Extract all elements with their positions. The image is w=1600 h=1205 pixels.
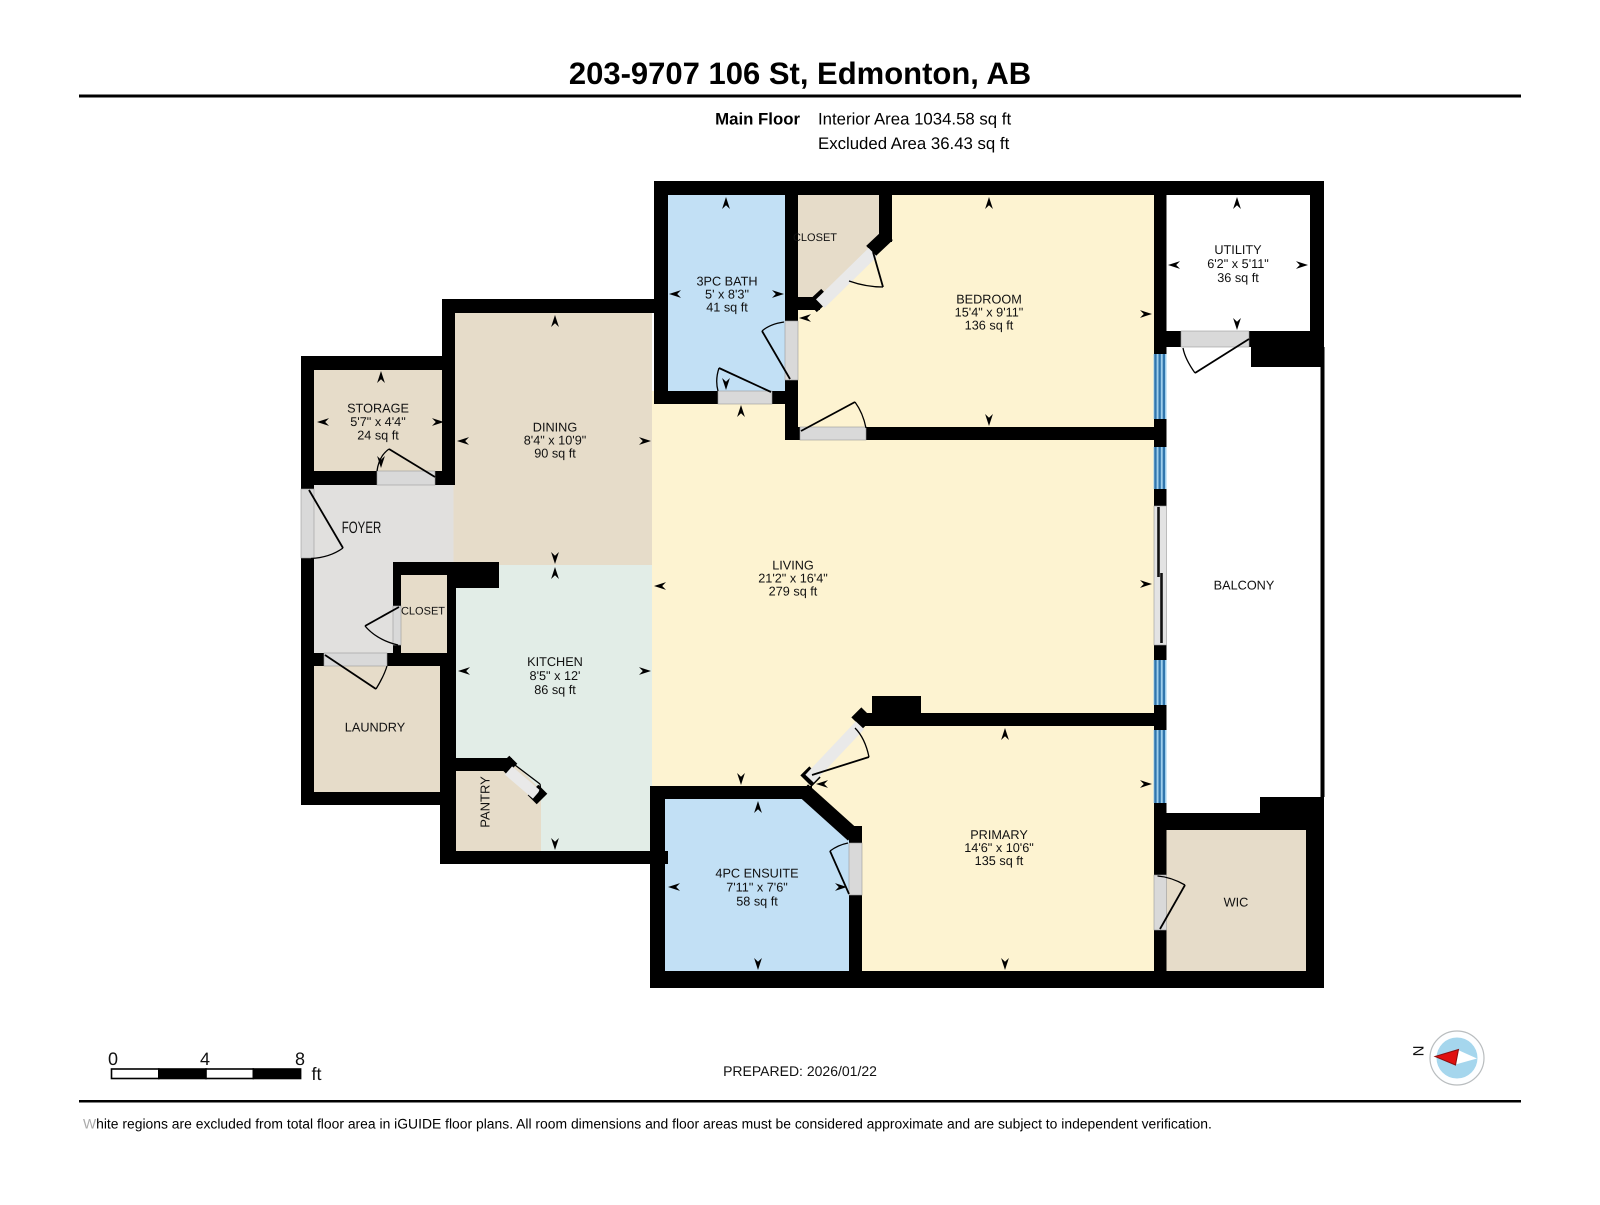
svg-text:203-9707 106 St, Edmonton, AB: 203-9707 106 St, Edmonton, AB	[569, 56, 1031, 91]
svg-text:ft: ft	[312, 1064, 322, 1084]
svg-text:15'4" x 9'11": 15'4" x 9'11"	[955, 306, 1024, 320]
svg-text:14'6" x 10'6": 14'6" x 10'6"	[964, 841, 1034, 855]
svg-text:21'2" x 16'4": 21'2" x 16'4"	[758, 572, 828, 586]
svg-text:8'4" x 10'9": 8'4" x 10'9"	[524, 434, 587, 448]
svg-text:3PC BATH: 3PC BATH	[696, 275, 757, 289]
svg-text:BALCONY: BALCONY	[1214, 579, 1275, 593]
svg-text:CLOSET: CLOSET	[401, 606, 445, 618]
svg-text:Main Floor: Main Floor	[715, 110, 800, 129]
svg-text:135 sq ft: 135 sq ft	[975, 854, 1024, 868]
svg-text:58 sq ft: 58 sq ft	[736, 895, 778, 909]
svg-text:36 sq ft: 36 sq ft	[1217, 271, 1259, 285]
svg-text:4: 4	[200, 1049, 210, 1069]
svg-text:8'5" x 12': 8'5" x 12'	[530, 669, 581, 683]
svg-text:WIC: WIC	[1224, 896, 1249, 910]
svg-text:BEDROOM: BEDROOM	[956, 293, 1022, 307]
svg-text:8: 8	[295, 1049, 305, 1069]
svg-text:41 sq ft: 41 sq ft	[706, 301, 748, 315]
svg-text:KITCHEN: KITCHEN	[527, 655, 583, 669]
svg-text:DINING: DINING	[533, 421, 577, 435]
svg-text:90 sq ft: 90 sq ft	[534, 447, 576, 461]
svg-text:FOYER: FOYER	[342, 519, 382, 537]
svg-text:PREPARED: 2026/01/22: PREPARED: 2026/01/22	[723, 1063, 877, 1079]
svg-text:279 sq ft: 279 sq ft	[769, 585, 818, 599]
svg-text:7'11" x 7'6": 7'11" x 7'6"	[726, 881, 788, 895]
svg-text:6'2" x 5'11": 6'2" x 5'11"	[1207, 257, 1269, 271]
svg-text:4PC ENSUITE: 4PC ENSUITE	[715, 867, 798, 881]
svg-text:Interior Area 1034.58 sq ft: Interior Area 1034.58 sq ft	[818, 110, 1011, 129]
svg-text:5' x 8'3": 5' x 8'3"	[705, 288, 749, 302]
svg-text:PANTRY: PANTRY	[478, 776, 493, 828]
svg-text:UTILITY: UTILITY	[1214, 243, 1262, 257]
svg-text:LAUNDRY: LAUNDRY	[345, 721, 406, 735]
svg-text:PRIMARY: PRIMARY	[970, 828, 1028, 842]
svg-text:0: 0	[108, 1049, 118, 1069]
svg-text:Excluded Area 36.43 sq ft: Excluded Area 36.43 sq ft	[818, 134, 1010, 153]
svg-text:86 sq ft: 86 sq ft	[534, 683, 576, 697]
svg-text:STORAGE: STORAGE	[347, 402, 409, 416]
svg-text:24 sq ft: 24 sq ft	[357, 429, 399, 443]
svg-text:136 sq ft: 136 sq ft	[965, 319, 1014, 333]
svg-text:CLOSET: CLOSET	[793, 232, 837, 244]
svg-text:LIVING: LIVING	[772, 559, 814, 573]
svg-text:N: N	[1411, 1046, 1428, 1057]
svg-text:White regions are excluded fro: White regions are excluded from total fl…	[83, 1116, 1212, 1132]
svg-text:5'7" x 4'4": 5'7" x 4'4"	[350, 415, 405, 429]
